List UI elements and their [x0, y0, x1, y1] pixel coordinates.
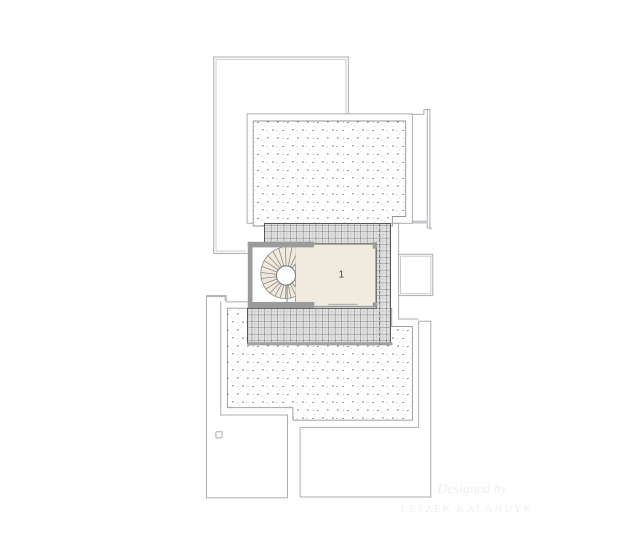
svg-text:Designed by: Designed by [436, 482, 507, 497]
svg-text:LESZEK KALANDYK: LESZEK KALANDYK [401, 504, 534, 515]
svg-text:1: 1 [339, 269, 345, 281]
